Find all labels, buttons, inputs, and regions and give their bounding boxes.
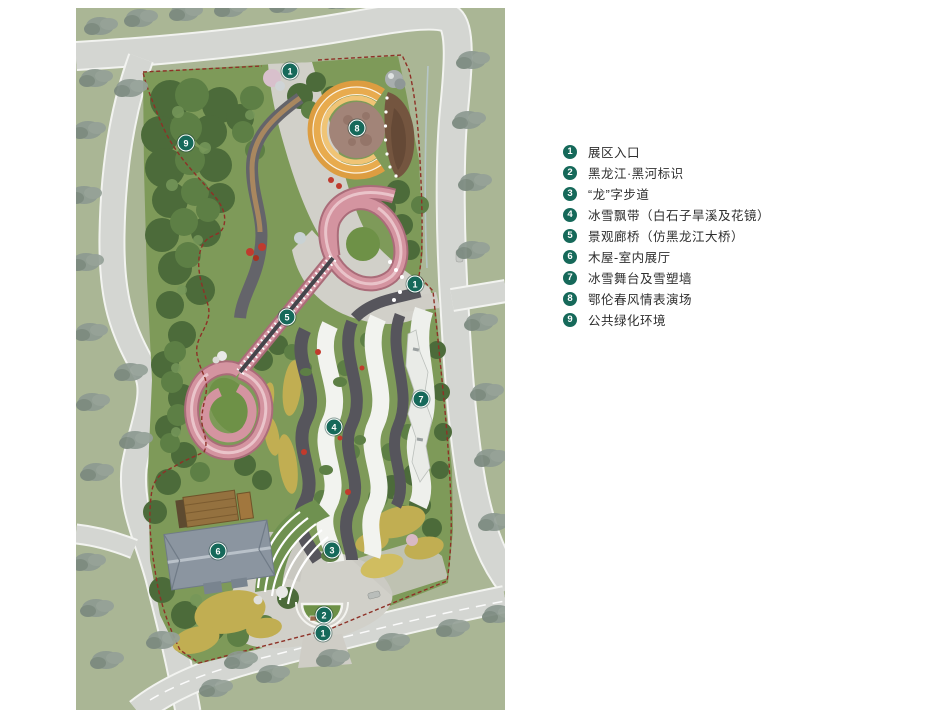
legend-item: 7冰雪舞台及雪塑墙 bbox=[563, 267, 770, 288]
legend-number-badge: 3 bbox=[563, 187, 577, 201]
legend-item-label: “龙”字步道 bbox=[588, 184, 649, 203]
legend-item: 1展区入口 bbox=[563, 141, 770, 162]
legend-item-label: 冰雪飘带（白石子旱溪及花镜） bbox=[588, 205, 770, 224]
legend-number-badge: 2 bbox=[563, 166, 577, 180]
legend-number-badge: 9 bbox=[563, 313, 577, 327]
legend-item-label: 公共绿化环境 bbox=[588, 310, 666, 329]
legend-item: 4冰雪飘带（白石子旱溪及花镜） bbox=[563, 204, 770, 225]
legend-item-label: 景观廊桥（仿黑龙江大桥） bbox=[588, 226, 744, 245]
legend-item-label: 木屋-室内展厅 bbox=[588, 247, 671, 266]
legend-item: 8鄂伦春风情表演场 bbox=[563, 288, 770, 309]
page: 18915743621 1展区入口2黑龙江·黑河标识3“龙”字步道4冰雪飘带（白… bbox=[0, 0, 950, 712]
legend-number-badge: 5 bbox=[563, 229, 577, 243]
legend-item-label: 鄂伦春风情表演场 bbox=[588, 289, 692, 308]
legend-item-label: 黑龙江·黑河标识 bbox=[588, 163, 684, 182]
legend-item-label: 冰雪舞台及雪塑墙 bbox=[588, 268, 692, 287]
legend-number-badge: 6 bbox=[563, 250, 577, 264]
legend-number-badge: 8 bbox=[563, 292, 577, 306]
legend-number-badge: 7 bbox=[563, 271, 577, 285]
legend-number-badge: 1 bbox=[563, 145, 577, 159]
site-plan-illustration bbox=[0, 0, 530, 712]
legend-item: 3“龙”字步道 bbox=[563, 183, 770, 204]
legend-item: 9公共绿化环境 bbox=[563, 309, 770, 330]
legend-item-label: 展区入口 bbox=[588, 142, 640, 161]
legend-item: 5景观廊桥（仿黑龙江大桥） bbox=[563, 225, 770, 246]
legend-item: 2黑龙江·黑河标识 bbox=[563, 162, 770, 183]
legend-number-badge: 4 bbox=[563, 208, 577, 222]
legend: 1展区入口2黑龙江·黑河标识3“龙”字步道4冰雪飘带（白石子旱溪及花镜）5景观廊… bbox=[563, 141, 770, 330]
legend-item: 6木屋-室内展厅 bbox=[563, 246, 770, 267]
